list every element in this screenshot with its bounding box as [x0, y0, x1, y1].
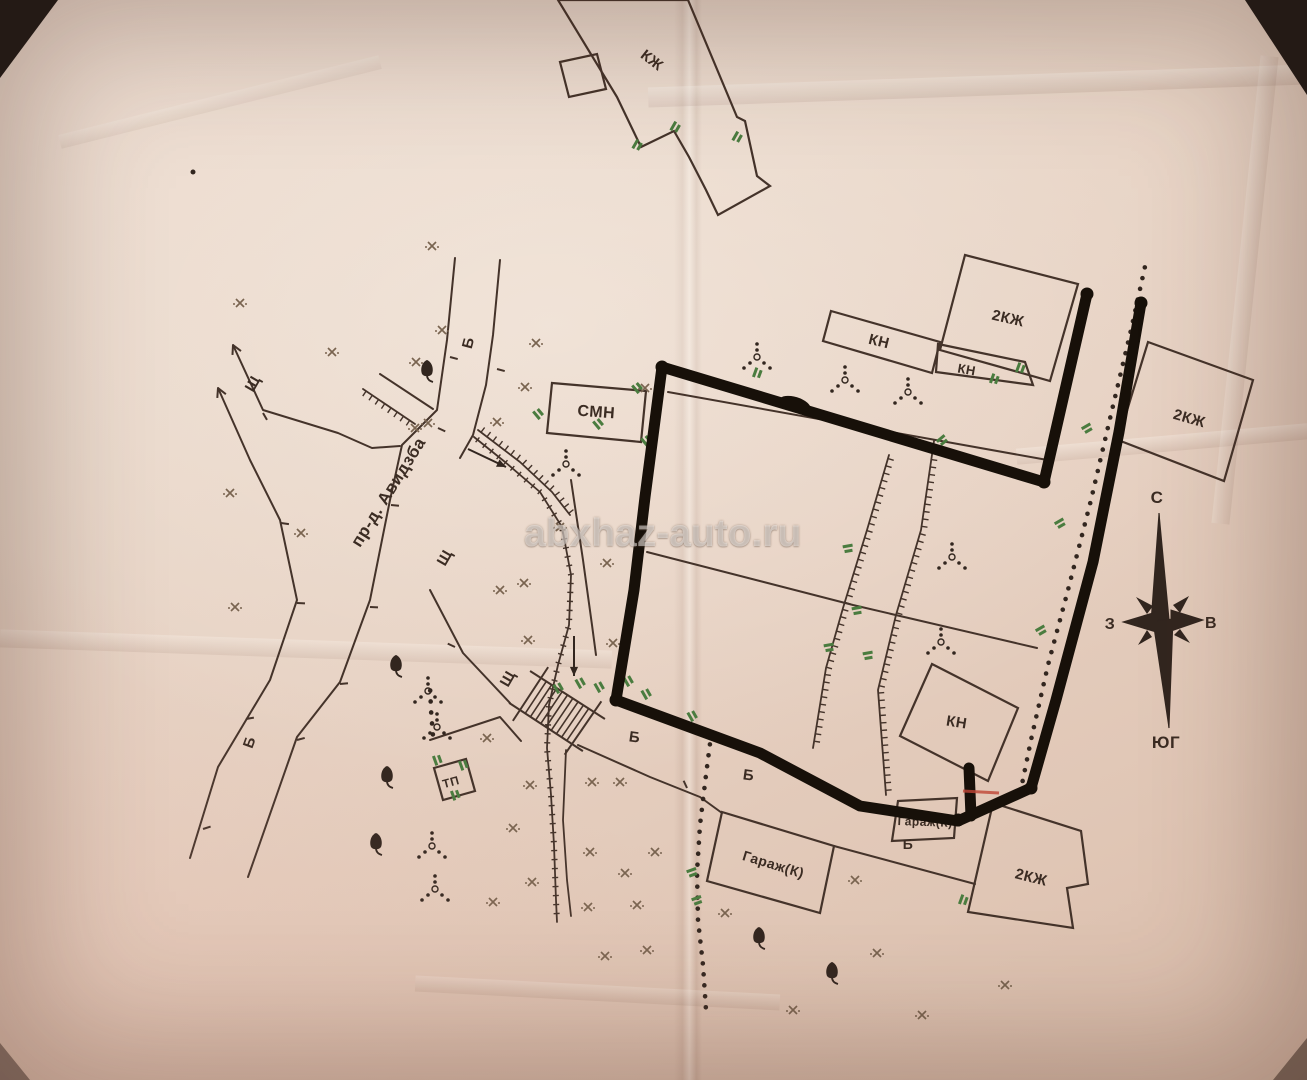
reference-dot: [191, 170, 196, 175]
map-label: В: [1205, 615, 1217, 632]
grass-symbol: [585, 778, 599, 786]
building-tp-box: ТП: [434, 759, 475, 800]
building-kzh-2-bottom: 2КЖ: [968, 803, 1088, 928]
map-label: СМН: [577, 403, 616, 423]
orchard-symbol: [926, 627, 956, 655]
map-label: Б: [903, 836, 914, 852]
shrub-symbol: [433, 754, 441, 765]
grass-symbol: [490, 418, 504, 426]
map-label: КН: [956, 361, 977, 379]
flow-arrows: [468, 449, 578, 676]
building-kzh-top-annex: [560, 54, 606, 97]
grass-symbol: [486, 898, 500, 906]
map-label: Щ: [497, 667, 520, 689]
shrub-symbol: [1055, 519, 1066, 528]
grass-symbol: [518, 383, 532, 391]
tree-symbol: [421, 360, 433, 382]
grass-symbol: [606, 639, 620, 647]
orchard-symbol: [551, 449, 581, 477]
tree-symbol: [390, 655, 402, 677]
site-plan-photo: КЖКНКН2КЖ2КЖСМНКНГараж(К)2КЖГараж(К)ТПпр…: [0, 0, 1307, 1080]
map-label: КЖ: [637, 46, 666, 74]
grass-symbol: [581, 903, 595, 911]
red-annotation-mark: [963, 791, 999, 793]
parcel-boundary-bold: [610, 288, 1148, 827]
grass-symbol: [425, 242, 439, 250]
grass-symbol: [493, 586, 507, 594]
shrub-symbol: [595, 681, 604, 692]
orchard-symbol: [417, 831, 447, 859]
buildings-layer: КЖКНКН2КЖ2КЖСМНКНГараж(К)2КЖГараж(К)ТП: [434, 0, 1253, 928]
grass-symbol: [598, 952, 612, 960]
shrub-symbol: [959, 895, 967, 906]
bridge-culvert: [509, 667, 605, 755]
grass-symbol: [294, 529, 308, 537]
shrub-symbol: [451, 789, 459, 800]
grass-symbol: [848, 876, 862, 884]
grass-symbol: [618, 869, 632, 877]
shrub-symbol: [688, 710, 697, 721]
grass-symbol: [409, 358, 423, 366]
parcel-interior-lines: [647, 392, 1053, 648]
grass-symbol: [325, 348, 339, 356]
map-label: КН: [945, 713, 968, 733]
building-garage-big: Гараж(К): [707, 812, 834, 913]
grass-symbol: [583, 848, 597, 856]
shrub-symbol: [843, 545, 854, 552]
grass-symbol: [223, 489, 237, 497]
compass-rose: СЮГЗВ: [1105, 488, 1217, 752]
grass-symbol: [600, 559, 614, 567]
site-plan-drawing: КЖКНКН2КЖ2КЖСМНКНГараж(К)2КЖГараж(К)ТПпр…: [0, 0, 1307, 1080]
map-label: З: [1105, 616, 1116, 633]
grass-symbol: [233, 299, 247, 307]
shrub-symbol: [733, 132, 742, 143]
map-label: 2КЖ: [990, 307, 1026, 331]
shrub-symbol: [642, 688, 651, 699]
grass-symbol: [613, 778, 627, 786]
building-smn: СМН: [547, 383, 646, 442]
orchard-symbol: [420, 874, 450, 902]
map-label: Б: [742, 766, 756, 784]
map-label: пр-д. Авидзба: [347, 434, 429, 550]
grass-symbol: [517, 579, 531, 587]
map-label: ТП: [441, 773, 461, 791]
tree-symbol: [826, 962, 838, 984]
shrub-symbol: [824, 644, 835, 651]
orchard-symbol: [422, 712, 452, 740]
orchard-symbol: [937, 542, 967, 570]
map-label: Щ: [434, 546, 457, 568]
map-label: Б: [628, 728, 642, 746]
shrub-symbol: [692, 896, 703, 904]
map-label: 2КЖ: [1013, 865, 1049, 889]
grass-symbol: [630, 901, 644, 909]
map-label: Б: [240, 734, 260, 750]
building-kzh-2-right: 2КЖ: [1118, 342, 1253, 481]
map-label: 2КЖ: [1171, 406, 1207, 431]
shrub-symbol: [1036, 626, 1047, 635]
shrub-symbol: [533, 408, 543, 419]
fences-dotted: [428, 265, 1147, 1010]
grass-symbol: [870, 949, 884, 957]
grass-symbol: [523, 781, 537, 789]
building-kn-top-long: КН: [823, 311, 940, 373]
grass-symbol: [525, 878, 539, 886]
grass-symbol: [640, 946, 654, 954]
shrub-symbol: [687, 868, 698, 876]
grass-symbol: [786, 1006, 800, 1014]
building-kzh-top: КЖ: [558, 0, 770, 215]
map-label: ЮГ: [1152, 733, 1180, 752]
grass-symbol: [506, 824, 520, 832]
building-kn-mid: КН: [900, 664, 1018, 781]
grass-symbol: [648, 848, 662, 856]
orchard-symbol: [893, 377, 923, 405]
orchard-symbol: [830, 365, 860, 393]
shrub-symbol: [863, 652, 874, 659]
shrub-symbol: [576, 677, 585, 688]
tree-symbol: [370, 833, 382, 855]
shrub-symbol: [459, 759, 467, 770]
tree-symbol: [381, 766, 393, 788]
map-label: Б: [459, 335, 478, 350]
tree-symbol: [753, 927, 765, 949]
shrub-symbol: [633, 140, 642, 151]
grass-symbol: [529, 339, 543, 347]
grass-symbol: [228, 603, 242, 611]
shrub-symbol: [1016, 363, 1024, 374]
grass-symbol: [998, 981, 1012, 989]
shrub-symbol: [1082, 424, 1093, 433]
map-label: КН: [867, 331, 891, 353]
shrub-symbol: [753, 368, 761, 379]
orchard-symbol: [742, 342, 772, 370]
map-label: Гараж(К): [741, 847, 807, 881]
grass-symbol: [718, 909, 732, 917]
map-label: Щ: [242, 372, 265, 394]
grass-symbol: [480, 734, 494, 742]
grass-symbol: [521, 636, 535, 644]
grass-symbol: [915, 1011, 929, 1019]
map-label: С: [1151, 488, 1164, 507]
shrub-symbol: [852, 607, 863, 614]
vegetation-symbols: [223, 122, 1093, 1019]
